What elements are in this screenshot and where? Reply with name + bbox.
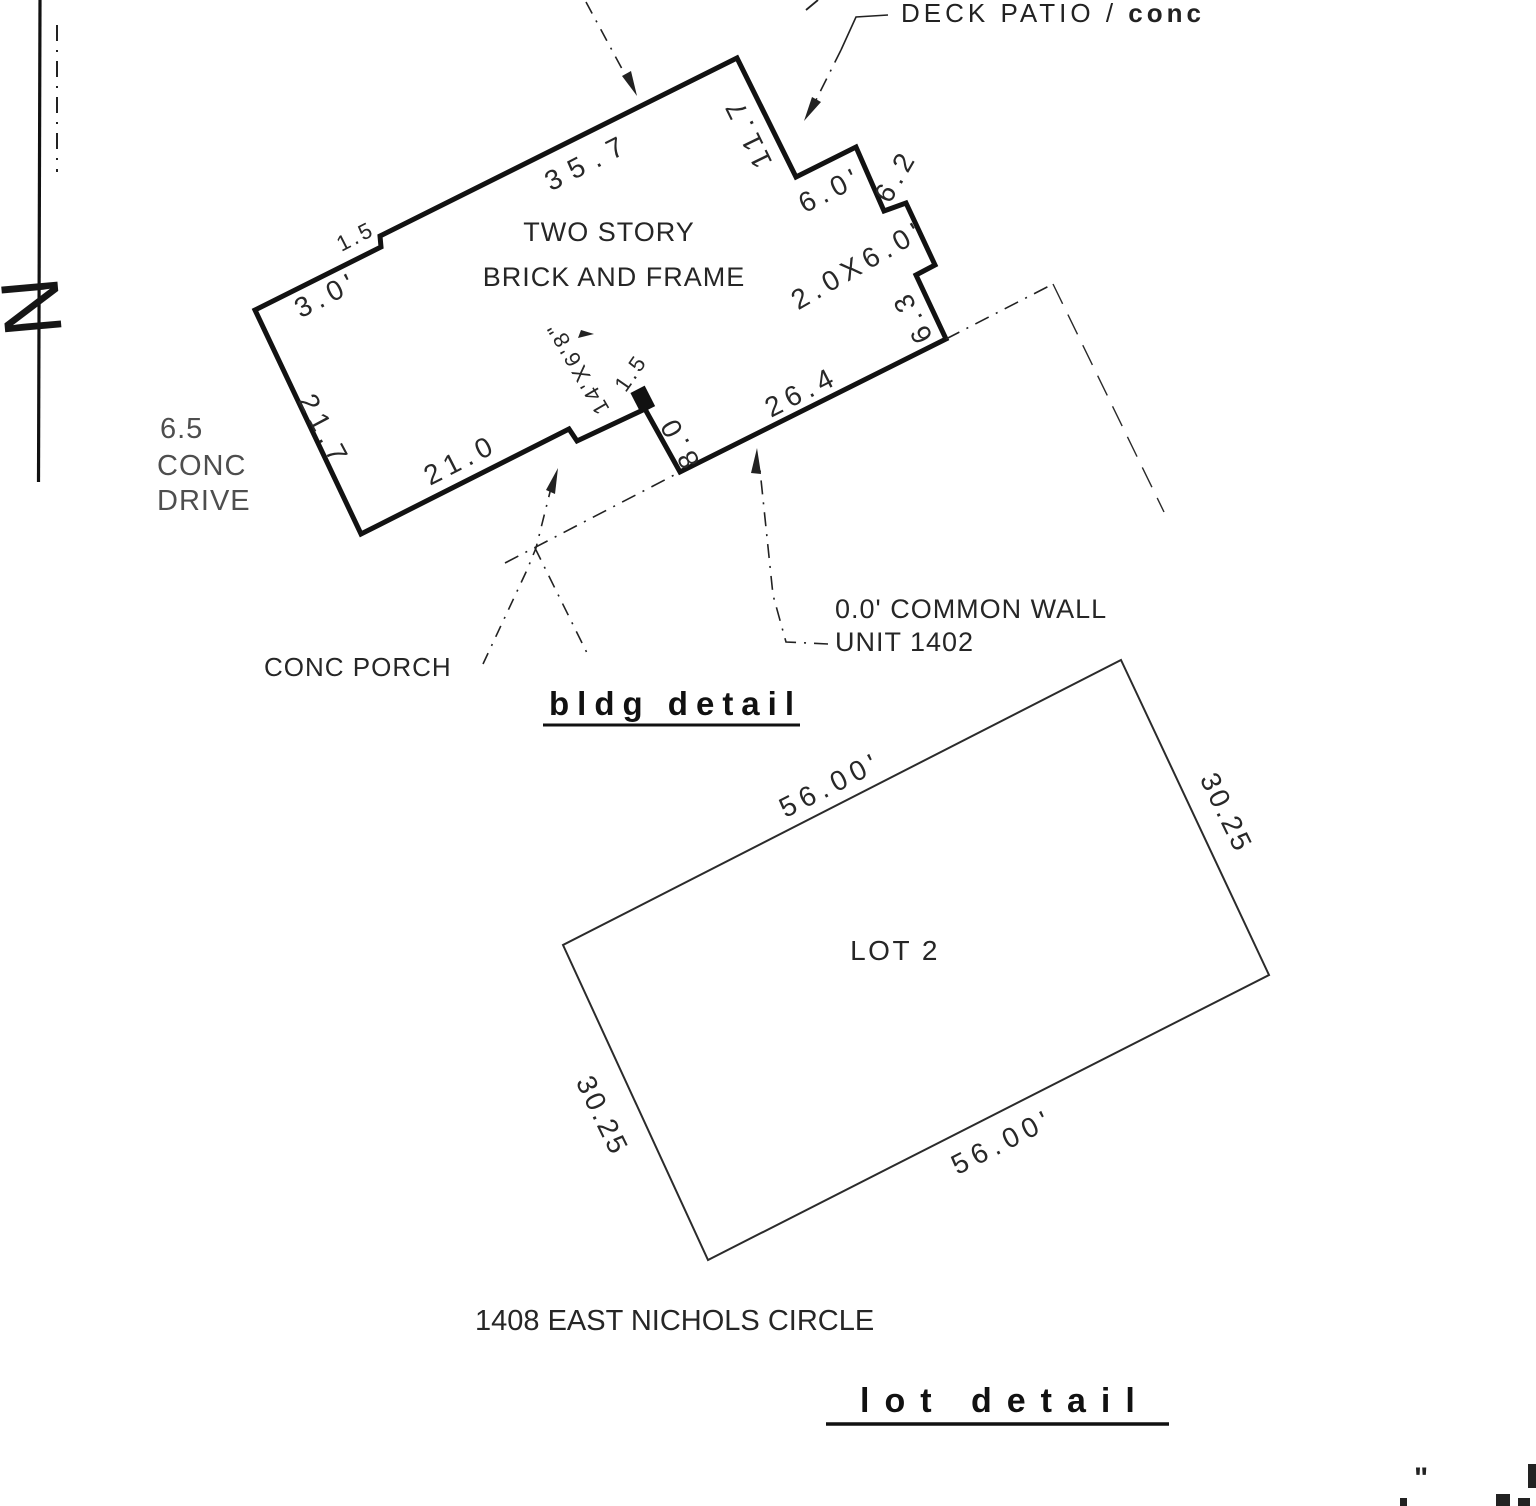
svg-text:UNIT 1402: UNIT 1402 [835, 627, 974, 657]
svg-text:11.7: 11.7 [717, 91, 778, 173]
svg-text:bldg detail: bldg detail [549, 685, 802, 722]
svg-text:N: N [0, 273, 80, 340]
svg-text:8.0: 8.0 [652, 409, 706, 474]
svg-text:DECK PATIO / conc: DECK PATIO / conc [901, 0, 1205, 28]
svg-text:6.5: 6.5 [160, 413, 203, 445]
svg-text:21.7: 21.7 [292, 389, 356, 473]
svg-text:lot detail: lot detail [860, 1382, 1150, 1420]
svg-text:": " [1414, 1462, 1428, 1495]
svg-text:CONC: CONC [157, 450, 246, 482]
svg-text:LOT 2: LOT 2 [850, 935, 940, 966]
svg-text:30.25: 30.25 [570, 1071, 635, 1161]
svg-text:14'X6'8": 14'X6'8" [541, 317, 615, 419]
svg-text:0.0' COMMON WALL: 0.0' COMMON WALL [835, 594, 1107, 624]
svg-text:6.2: 6.2 [868, 143, 923, 208]
svg-text:35.7: 35.7 [540, 126, 638, 197]
svg-text:DRIVE: DRIVE [157, 485, 251, 517]
svg-text:TWO STORY: TWO STORY [523, 217, 695, 247]
svg-text:6.3: 6.3 [885, 284, 939, 349]
svg-text:30.25: 30.25 [1194, 768, 1259, 858]
svg-text:BRICK AND FRAME: BRICK AND FRAME [483, 262, 746, 292]
svg-text:56.00': 56.00' [946, 1102, 1059, 1180]
svg-text:6.0': 6.0' [793, 160, 868, 219]
svg-text:56.00': 56.00' [774, 745, 887, 823]
svg-text:1408 EAST NICHOLS CIRCLE: 1408 EAST NICHOLS CIRCLE [475, 1305, 874, 1337]
svg-text:CONC PORCH: CONC PORCH [264, 652, 452, 682]
